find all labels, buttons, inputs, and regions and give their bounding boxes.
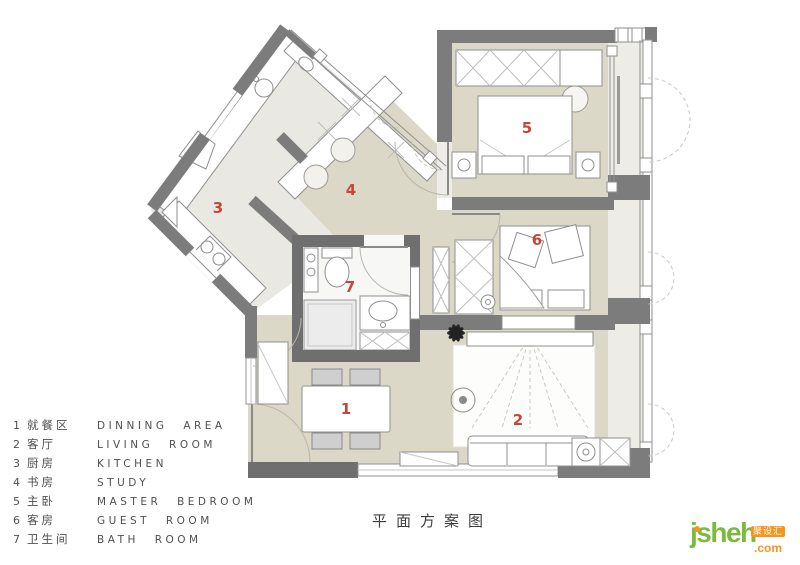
nightstand xyxy=(576,152,600,178)
shower-tray xyxy=(304,300,356,350)
dining-chair xyxy=(312,369,342,385)
legend-item-guest-room: 6 客房 GUEST ROOM xyxy=(13,512,256,531)
legend-item-master-bedroom: 5 主卧 MASTER BEDROOM xyxy=(13,493,256,512)
room-number-2: 2 xyxy=(513,411,523,429)
drawing-title: 平面方案图 xyxy=(372,510,492,531)
pillow xyxy=(548,290,584,308)
legend-item-dining: 1 就餐区 DINNING AREA xyxy=(13,417,256,436)
brand-name: jsheh xyxy=(690,517,756,549)
pillow xyxy=(482,156,524,174)
brand-tld: .com xyxy=(754,541,782,555)
legend: 1 就餐区 DINNING AREA 2 客厅 LIVING ROOM 3 厨房… xyxy=(13,417,256,550)
stool xyxy=(481,295,495,309)
legend-item-study: 4 书房 STUDY xyxy=(13,474,256,493)
nightstand xyxy=(452,152,476,178)
bath-shelf xyxy=(304,248,318,292)
legend-item-living: 2 客厅 LIVING ROOM xyxy=(13,436,256,455)
room-number-1: 1 xyxy=(341,400,351,418)
dining-chair xyxy=(312,433,342,449)
room-number-7: 7 xyxy=(345,278,355,296)
legend-item-bathroom: 7 卫生间 BATH ROOM xyxy=(13,531,256,550)
window-swings xyxy=(648,78,690,456)
pillow xyxy=(528,156,570,174)
legend-item-kitchen: 3 厨房 KITCHEN xyxy=(13,455,256,474)
side-table xyxy=(572,438,600,466)
tv-bench xyxy=(467,332,593,346)
desk-chair xyxy=(304,165,328,189)
brand-dot-icon xyxy=(694,526,700,532)
curtain-icon xyxy=(617,76,620,164)
sofa xyxy=(468,436,588,466)
window-bench xyxy=(502,316,575,329)
hall-cabinet xyxy=(433,247,449,313)
room-number-6: 6 xyxy=(532,231,542,249)
wardrobe-icon xyxy=(456,50,560,86)
brand-badge: 聚设汇 xyxy=(751,526,785,537)
room-number-5: 5 xyxy=(522,119,532,137)
room-number-4: 4 xyxy=(346,181,356,199)
floor-plan-page: 冰箱 xyxy=(0,0,800,565)
room-number-3: 3 xyxy=(213,199,223,217)
dining-chair xyxy=(350,433,380,449)
desk-chair xyxy=(331,138,355,162)
brand-watermark: jsheh 聚设汇 .com xyxy=(690,524,798,564)
dining-chair xyxy=(350,369,380,385)
cushion xyxy=(545,225,584,264)
